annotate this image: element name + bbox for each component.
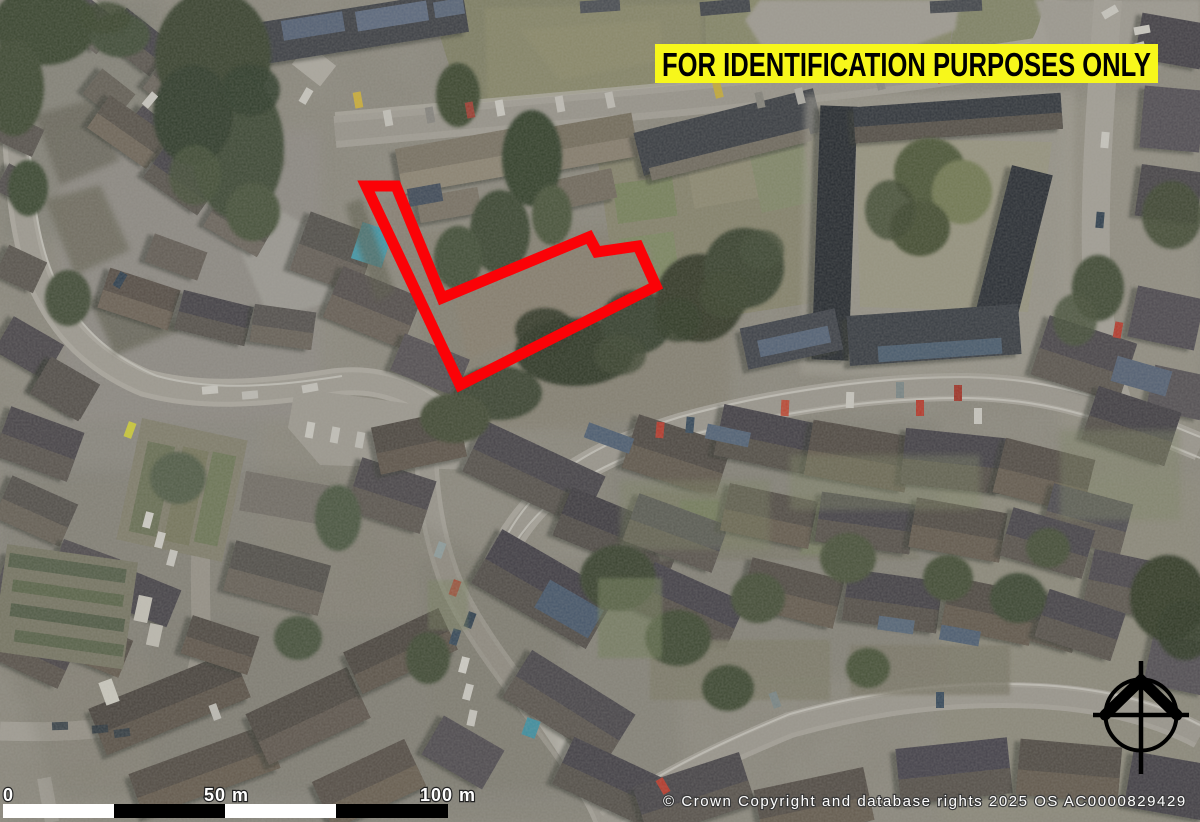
svg-text:0: 0 <box>3 785 14 805</box>
svg-text:50 m: 50 m <box>204 785 249 805</box>
svg-text:FOR IDENTIFICATION PURPOSES ON: FOR IDENTIFICATION PURPOSES ONLY <box>662 46 1151 83</box>
svg-text:© Crown Copyright and database: © Crown Copyright and database rights 20… <box>663 793 1187 810</box>
svg-text:100 m: 100 m <box>420 785 476 805</box>
